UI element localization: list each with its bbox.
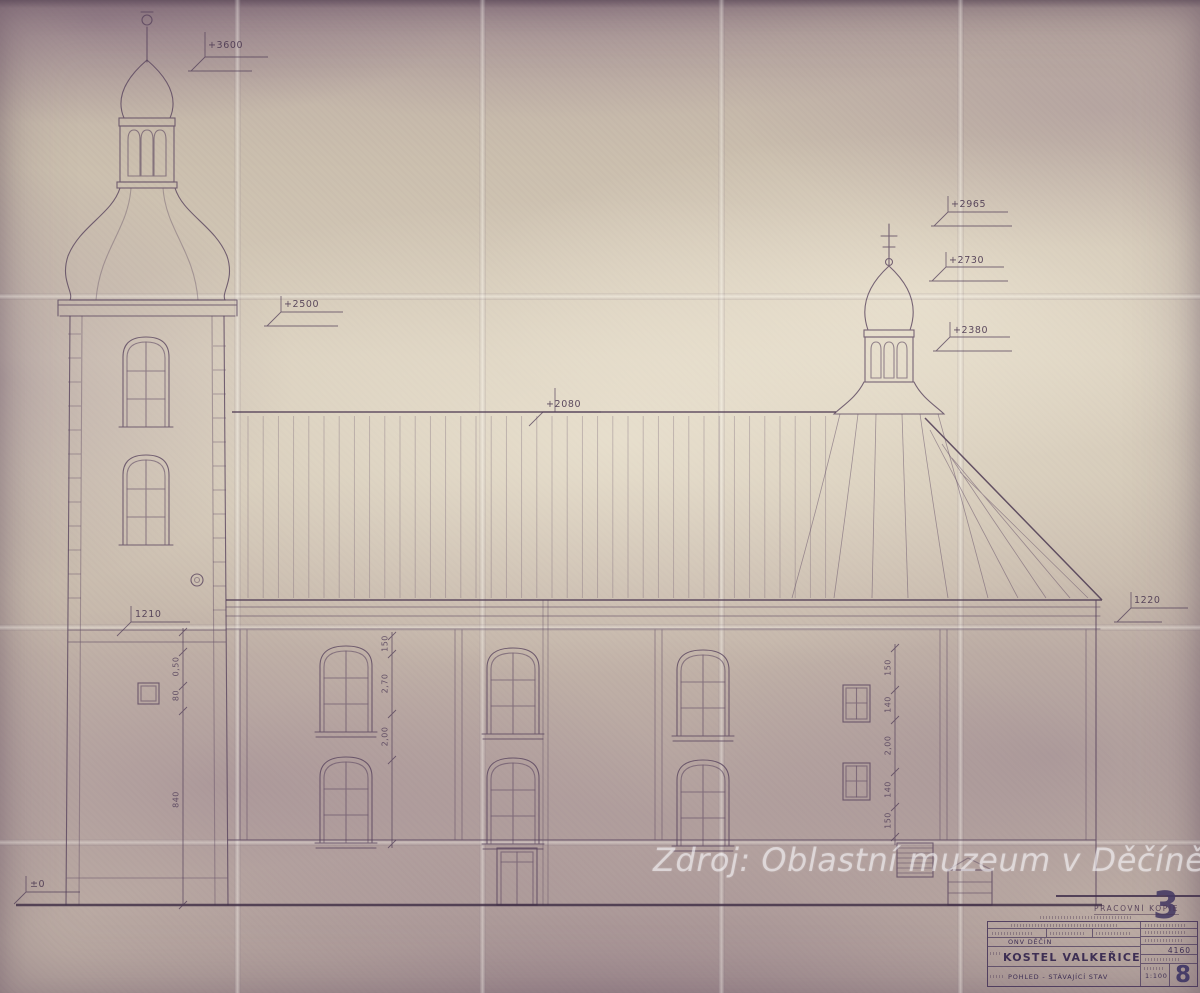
roof-outline bbox=[226, 412, 1102, 600]
elevation-marker: 1210 bbox=[135, 609, 162, 620]
tower-cornice bbox=[58, 300, 237, 316]
illegible-text bbox=[990, 975, 1004, 978]
scanned-drawing-sheet: +3600 +2500 +2965 +2730 +2380 +2080 1210… bbox=[0, 0, 1200, 993]
scale-value: 1:100 bbox=[1141, 972, 1169, 980]
project-title: KOSTEL VALKEŘICE bbox=[1003, 951, 1141, 964]
dimension-value: 840 bbox=[172, 783, 181, 817]
dimension-value: 2,70 bbox=[381, 667, 390, 701]
elevation-marker: +2080 bbox=[546, 399, 581, 410]
ridge-turret bbox=[834, 224, 944, 414]
title-block-row bbox=[1141, 937, 1197, 945]
sheet-number-cell: 8 bbox=[1169, 964, 1197, 986]
entrance-door bbox=[497, 848, 537, 905]
drawing-title: POHLED - STÁVAJÍCÍ STAV bbox=[1008, 973, 1108, 981]
title-block-row bbox=[1141, 929, 1197, 937]
title-block-row bbox=[988, 922, 1140, 929]
dimension-value: 150 bbox=[381, 627, 390, 661]
title-block-row bbox=[1141, 922, 1197, 929]
illegible-text bbox=[990, 952, 1000, 955]
elevation-marker: ±0 bbox=[30, 879, 45, 890]
title-block-cell bbox=[1046, 929, 1093, 937]
title-block-row bbox=[988, 929, 1140, 938]
dimension-value: 150 bbox=[884, 651, 893, 685]
title-block-cell bbox=[1092, 929, 1140, 937]
tower-onion-dome bbox=[65, 60, 229, 300]
elevation-marker: +2730 bbox=[949, 255, 984, 266]
dimension-value: 150 bbox=[884, 804, 893, 838]
elevation-marker: +2500 bbox=[284, 299, 319, 310]
tower-quoin-bands bbox=[68, 334, 226, 610]
illegible-text bbox=[1144, 967, 1164, 970]
dimension-value: 2,00 bbox=[381, 720, 390, 754]
title-block-cell bbox=[988, 929, 1047, 937]
roof-shingle-hatch bbox=[248, 416, 826, 598]
drawing-number-cell: 4160 bbox=[1141, 945, 1197, 955]
elevation-marker: 1220 bbox=[1134, 595, 1161, 606]
elevation-marker: +3600 bbox=[208, 40, 243, 51]
project-title-cell: KOSTEL VALKEŘICE bbox=[988, 948, 1140, 967]
dimension-value: 140 bbox=[884, 773, 893, 807]
authority-cell: ONV DĚČÍN bbox=[988, 938, 1140, 947]
illegible-text bbox=[1011, 924, 1117, 927]
drawing-title-cell: POHLED - STÁVAJÍCÍ STAV bbox=[988, 967, 1140, 986]
turret-roof-skirt bbox=[792, 414, 988, 598]
elevation-marker: +2965 bbox=[951, 199, 986, 210]
working-copy-stamp: PRACOVNÍ KOPIE bbox=[1094, 904, 1179, 915]
dimension-value: 140 bbox=[884, 688, 893, 722]
source-watermark: Zdroj: Oblastní muzeum v Děčíně bbox=[653, 841, 1193, 879]
scale-cell: 1:100 bbox=[1141, 964, 1170, 986]
dimension-leaders bbox=[14, 32, 1188, 904]
main-cornice bbox=[226, 607, 1100, 629]
title-block: ONV DĚČÍN KOSTEL VALKEŘICE POHLED - STÁV… bbox=[987, 921, 1198, 987]
illegible-text bbox=[1040, 916, 1132, 919]
elevation-marker: +2380 bbox=[953, 325, 988, 336]
dimension-value: 80 bbox=[172, 679, 181, 713]
tower-spire bbox=[141, 12, 153, 62]
dimension-value: 2,00 bbox=[884, 729, 893, 763]
roof-hip-lines bbox=[930, 430, 1088, 598]
